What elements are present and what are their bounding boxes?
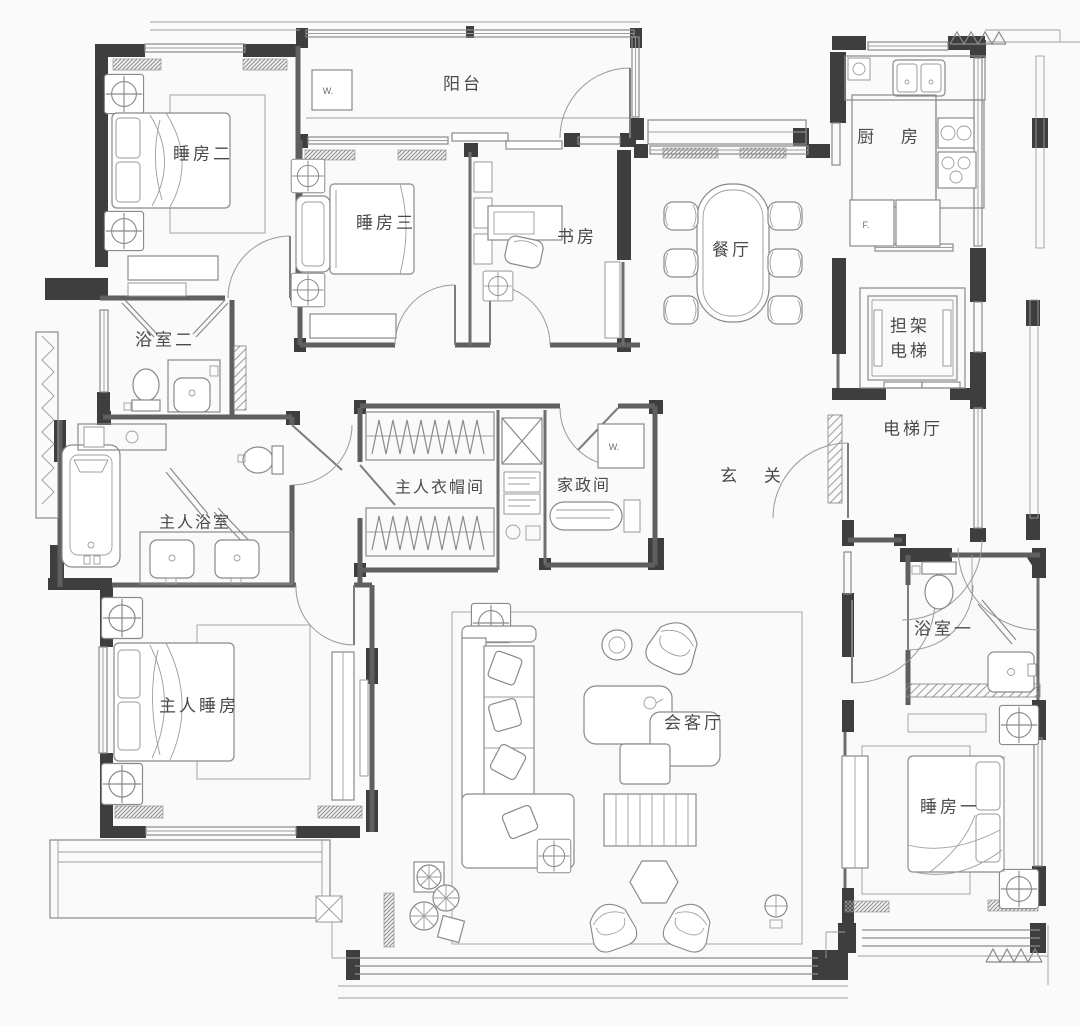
room-label-bedroom1: 睡房一 — [920, 796, 980, 821]
furniture-living — [410, 603, 802, 955]
room-label-dining-room: 餐厅 — [712, 239, 752, 264]
room-label-master-bedroom: 主人睡房 — [159, 695, 239, 720]
room-label-balcony: 阳台 — [443, 73, 483, 98]
room-label-study: 书房 — [557, 226, 597, 251]
doors-layer — [122, 68, 1040, 683]
room-label-master-closet: 主人衣帽间 — [395, 476, 485, 499]
room-label-living-room: 会客厅 — [664, 712, 724, 737]
furniture-utility — [502, 418, 542, 540]
room-label-bathroom2: 浴室二 — [135, 329, 195, 354]
floor-plan: W. F. — [0, 0, 1080, 1025]
room-label-elevator-hall: 电梯厅 — [883, 418, 943, 443]
room-label-housekeeping: 家政间 — [557, 474, 611, 497]
furniture-bedroom3 — [291, 159, 414, 338]
room-label-bedroom2: 睡房二 — [173, 143, 233, 168]
room-label-master-bathroom: 主人浴室 — [159, 511, 231, 534]
fridge-mark: F. — [862, 220, 869, 230]
room-label-kitchen: 厨 房 — [857, 126, 929, 151]
furniture-bedroom2 — [104, 74, 265, 296]
furniture-balcony: W. — [312, 70, 352, 110]
furniture-master-bathroom — [62, 424, 292, 584]
furniture-bathroom2 — [124, 360, 220, 412]
furniture-study — [474, 162, 620, 338]
room-label-bathroom1: 浴室一 — [914, 618, 974, 643]
room-label-stretcher-elevator: 担架 电梯 — [890, 314, 930, 363]
room-label-bedroom3: 睡房三 — [356, 212, 416, 237]
furniture-kitchen: F. — [845, 56, 985, 246]
room-label-foyer: 玄 关 — [720, 465, 792, 490]
balcony-unit-mark: W. — [323, 86, 334, 96]
housekeeping-unit-mark: W. — [609, 442, 620, 452]
